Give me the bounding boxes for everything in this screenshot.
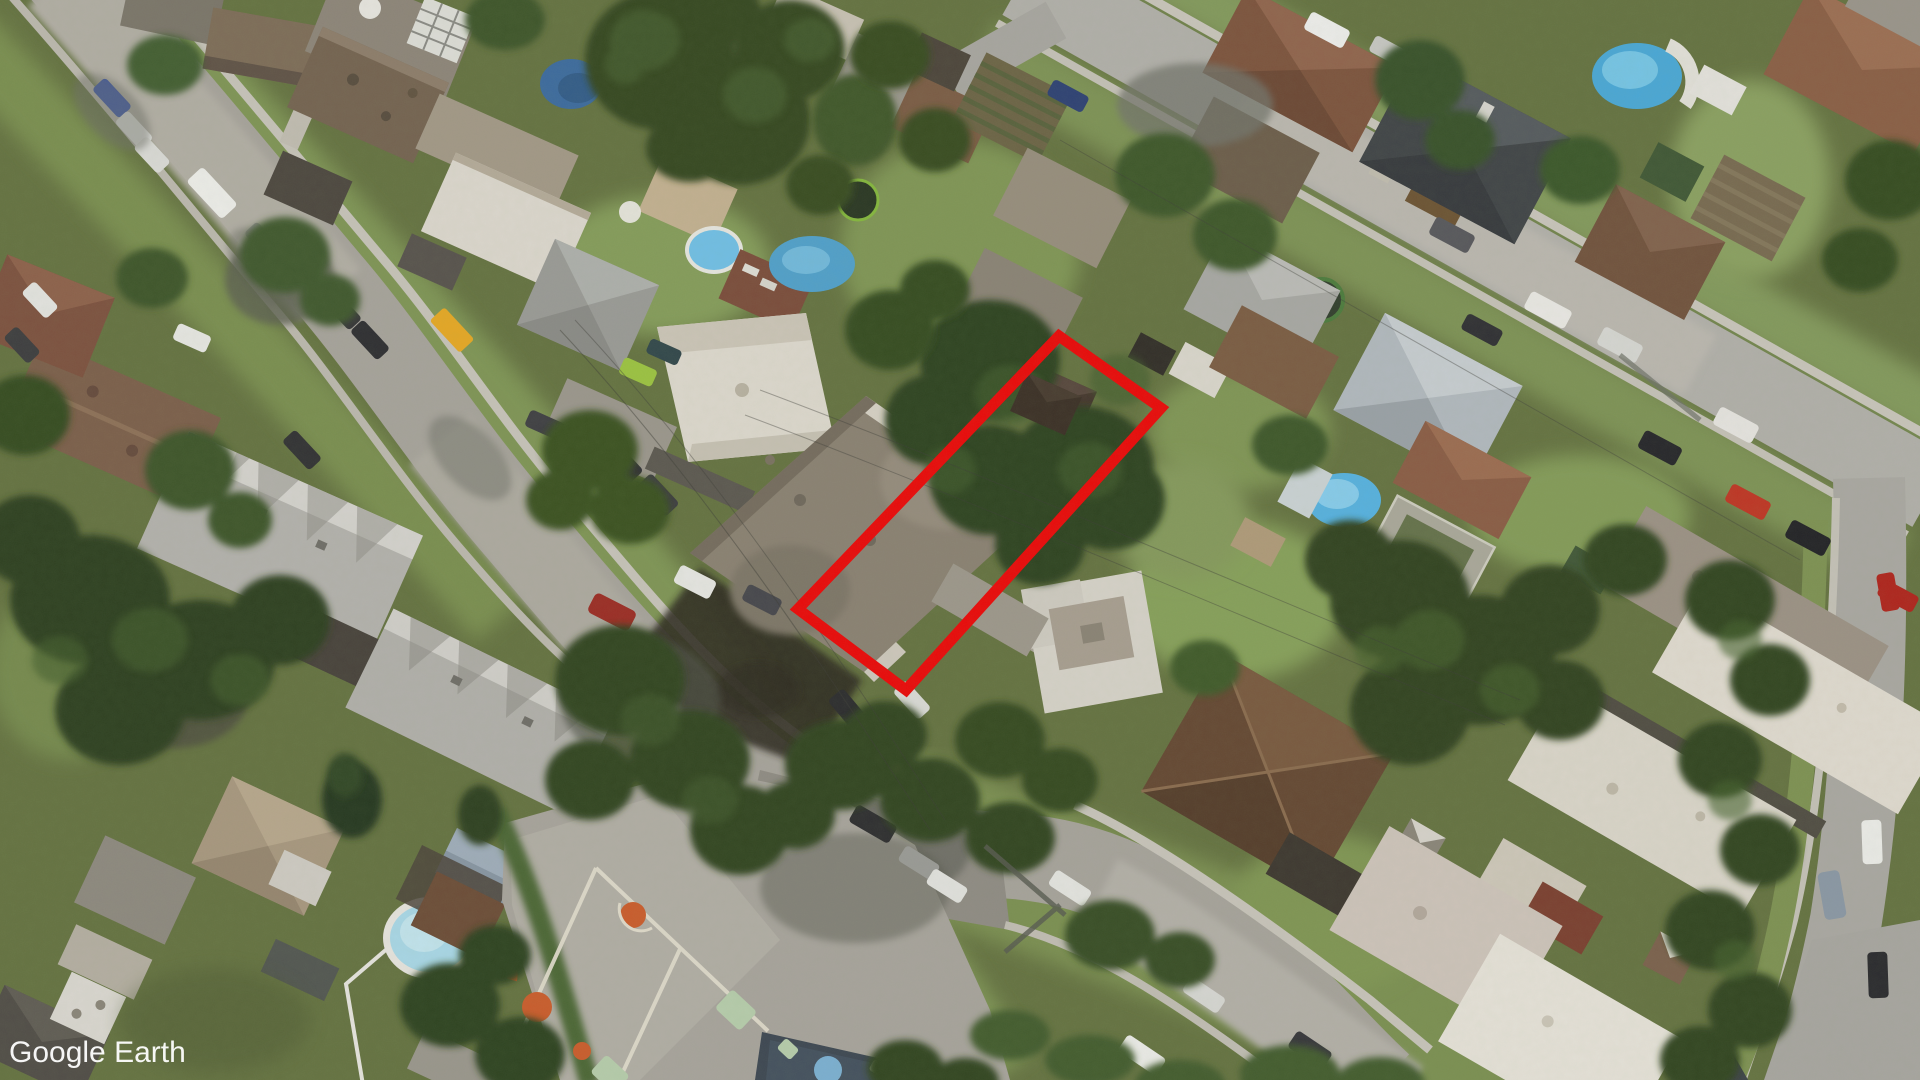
- svg-text:Google Earth: Google Earth: [9, 1036, 186, 1069]
